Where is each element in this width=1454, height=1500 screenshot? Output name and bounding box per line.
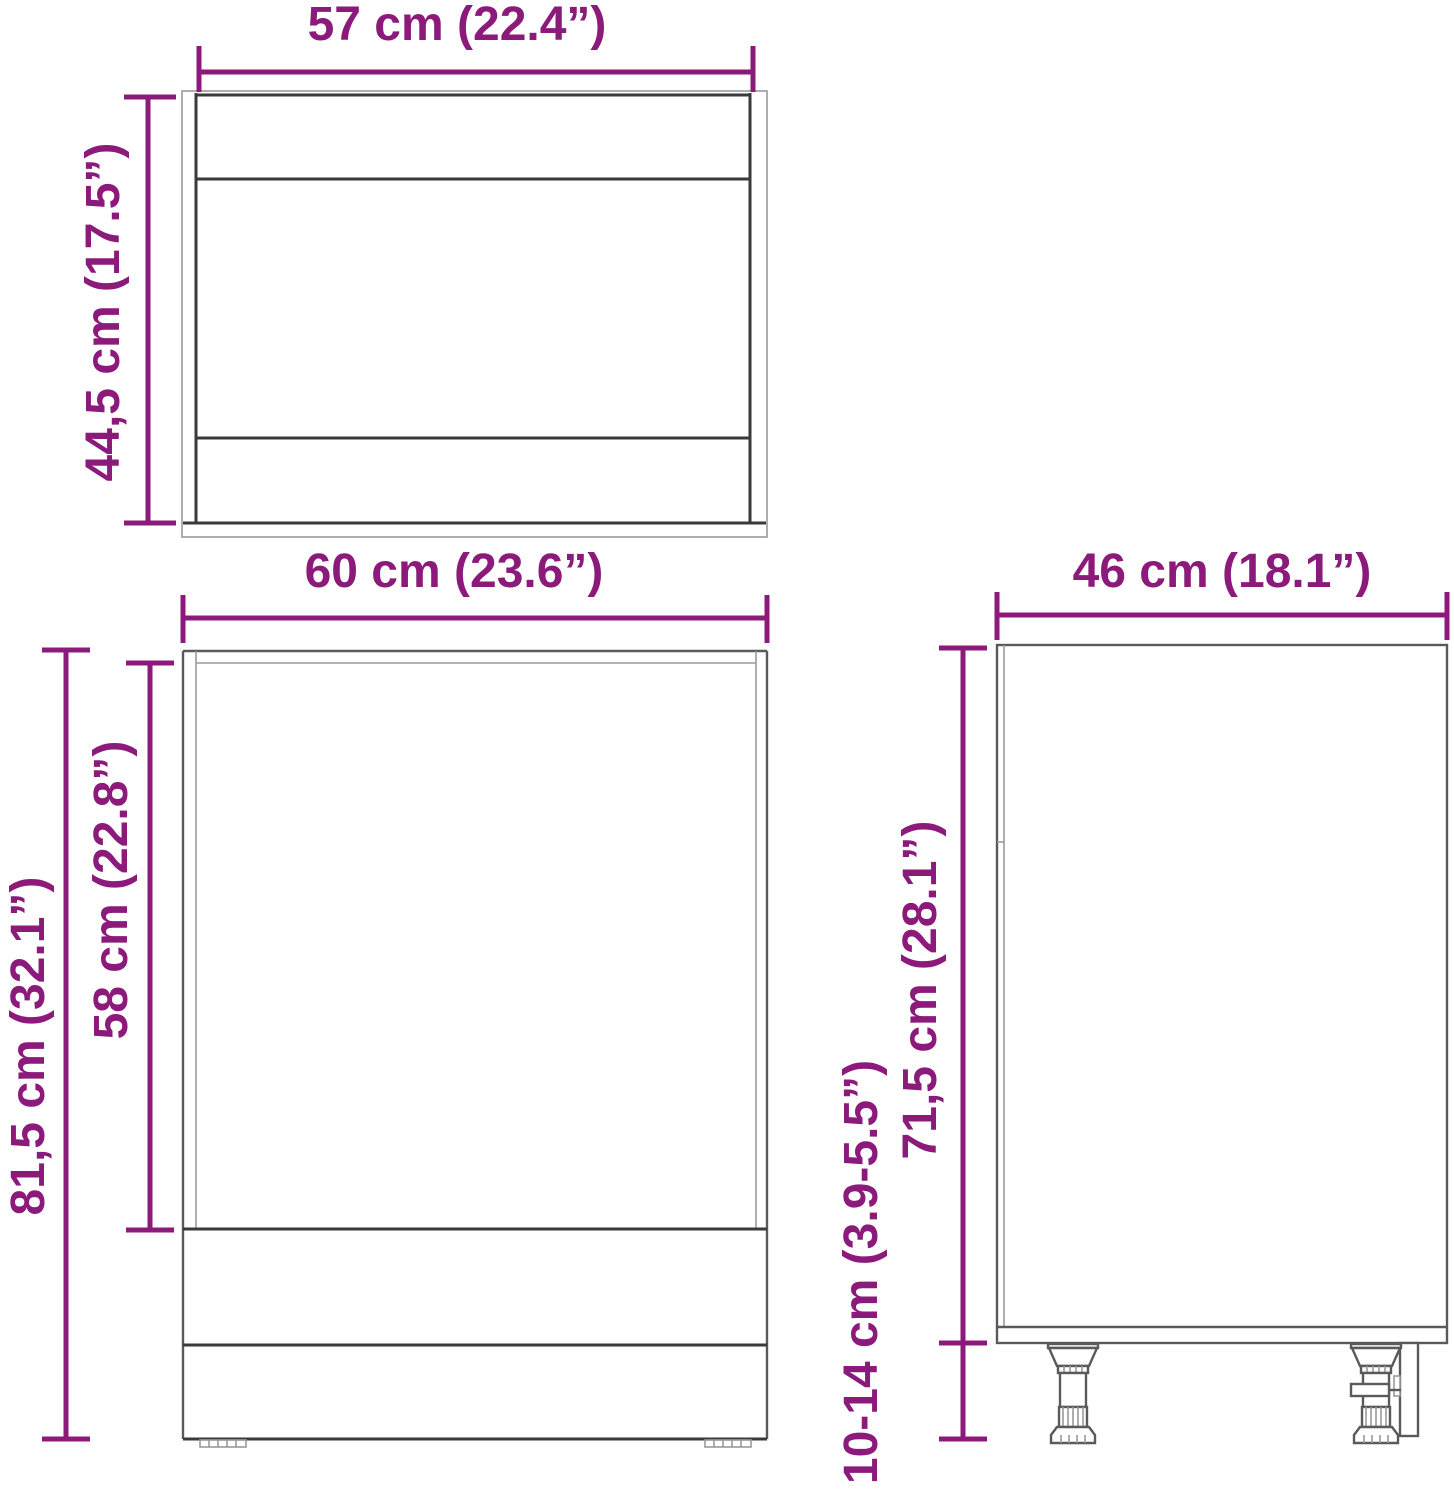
top-view-width-label: 57 cm (22.4”) [157, 0, 757, 50]
dim-line-side-depth [997, 592, 1447, 640]
top-view-drawing [182, 91, 767, 537]
front-view-width-label: 60 cm (23.6”) [154, 547, 754, 597]
front-view-total-height-label: 81,5 cm (32.1”) [4, 836, 54, 1256]
cabinet-dimension-diagram: 57 cm (22.4”) 44,5 cm (17.5”) 60 cm (23.… [0, 0, 1454, 1500]
side-view-body-height-label: 71,5 cm (28.1”) [896, 800, 946, 1180]
adjustable-leg-front [1048, 1344, 1098, 1443]
dim-line-front-width [183, 595, 767, 643]
dim-line-top-width [199, 46, 753, 92]
front-view-door-height-label: 58 cm (22.8”) [87, 705, 137, 1075]
front-door-panel [196, 651, 756, 1229]
dim-line-top-depth [124, 97, 176, 523]
cabinet-diagram-canvas [0, 0, 1454, 1500]
side-view-leg-height-label: 10-14 cm (3.9-5.5”) [837, 1047, 887, 1497]
front-view-drawing [183, 651, 767, 1447]
top-view-depth-label: 44,5 cm (17.5”) [79, 112, 129, 512]
side-view-depth-label: 46 cm (18.1”) [922, 547, 1454, 597]
front-left-foot [200, 1440, 246, 1447]
side-view-drawing [997, 645, 1447, 1443]
front-right-foot [705, 1440, 751, 1447]
